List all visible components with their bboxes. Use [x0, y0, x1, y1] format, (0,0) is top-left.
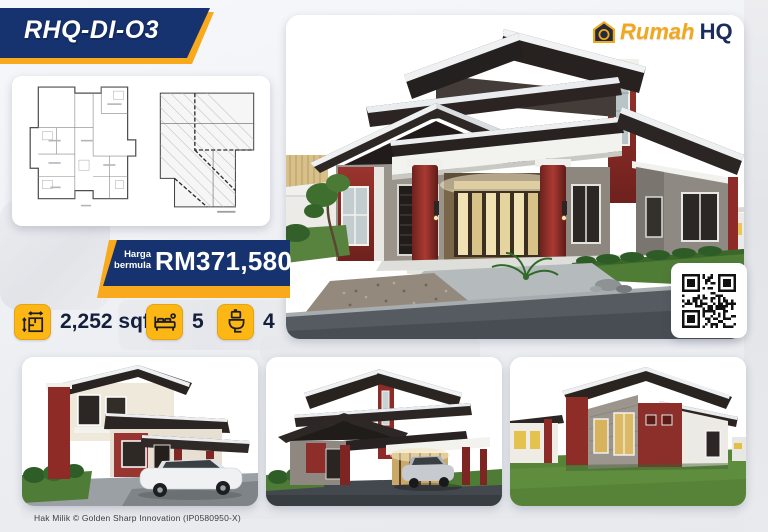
copyright-text: Hak Milik © Golden Sharp Innovation (IP0… [34, 513, 241, 523]
price-badge: Harga bermula RM371,580 [95, 238, 290, 302]
flyer-page: RHQ-DI-O3 [0, 0, 768, 532]
thumb-photo-right [510, 357, 746, 506]
house-render-thumb-middle [266, 357, 502, 506]
spec-area: 2,252 sqf [14, 304, 150, 340]
area-value: 2,252 sqf [60, 310, 150, 334]
background-watermark-right [744, 0, 768, 532]
spec-bathrooms: 4 [217, 304, 275, 340]
bed-icon [146, 304, 183, 340]
floor-plan-card [12, 76, 270, 226]
house-render-thumb-right [510, 357, 746, 506]
brand-logo: Rumah HQ [592, 19, 733, 45]
floor-plan-drawing [22, 83, 148, 219]
qr-card [671, 263, 747, 338]
model-code-text: RHQ-DI-O3 [24, 16, 194, 45]
bathrooms-value: 4 [263, 310, 275, 334]
model-code-badge: RHQ-DI-O3 [0, 0, 240, 72]
area-icon [14, 304, 51, 340]
logo-house-icon [592, 20, 616, 44]
price-amount: RM371,580 [155, 246, 292, 277]
logo-text-primary: Rumah [620, 19, 695, 45]
thumb-photo-middle [266, 357, 502, 506]
house-render-thumb-left [22, 357, 258, 506]
bedrooms-value: 5 [192, 310, 204, 334]
price-label: Harga bermula [107, 249, 151, 271]
logo-text-secondary: HQ [700, 19, 733, 45]
price-label-line1: Harga [107, 249, 151, 260]
qr-code [677, 269, 741, 333]
toilet-icon [217, 304, 254, 340]
spec-bedrooms: 5 [146, 304, 204, 340]
price-label-line2: bermula [107, 260, 151, 271]
thumb-photo-left [22, 357, 258, 506]
roof-plan-drawing [154, 83, 260, 219]
